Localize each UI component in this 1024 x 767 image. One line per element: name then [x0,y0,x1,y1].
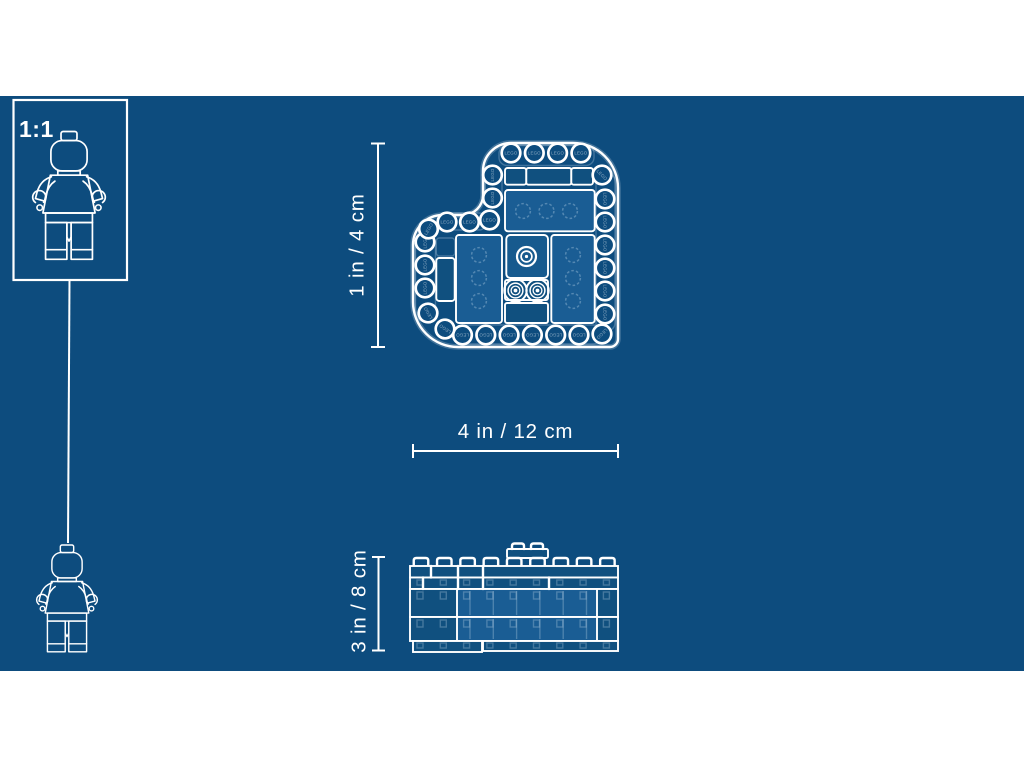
blueprint-illustration: 1:1 [0,0,1024,767]
svg-text:LEGO: LEGO [602,307,607,320]
instruction-page: 1:1 [0,0,1024,767]
svg-text:LEGO: LEGO [490,191,495,204]
svg-text:LEGO: LEGO [483,218,496,223]
svg-text:LEGO: LEGO [574,151,587,156]
svg-text:LEGO: LEGO [602,215,607,228]
svg-text:LEGO: LEGO [423,258,428,271]
svg-text:LEGO: LEGO [551,151,564,156]
svg-text:LEGO: LEGO [602,284,607,297]
dimension-label: 1 in / 4 cm [346,193,369,296]
dimension-side-view-height: 3 in / 8 cm [348,549,386,652]
scale-label: 1:1 [19,116,54,142]
svg-text:LEGO: LEGO [602,192,607,205]
svg-text:LEGO: LEGO [504,151,517,156]
svg-text:LEGO: LEGO [549,332,562,337]
svg-text:LEGO: LEGO [602,238,607,251]
svg-text:LEGO: LEGO [490,168,495,181]
svg-text:LEGO: LEGO [479,332,492,337]
svg-text:LEGO: LEGO [602,261,607,274]
svg-text:LEGO: LEGO [423,281,428,294]
dimension-label: 4 in / 12 cm [458,420,574,443]
svg-text:LEGO: LEGO [440,220,453,225]
svg-text:LEGO: LEGO [463,220,476,225]
svg-text:LEGO: LEGO [526,332,539,337]
dimension-label: 3 in / 8 cm [348,549,371,652]
top-tile [507,549,548,558]
svg-text:LEGO: LEGO [528,151,541,156]
svg-text:LEGO: LEGO [502,332,515,337]
svg-text:LEGO: LEGO [572,332,585,337]
svg-text:LEGO: LEGO [456,332,469,337]
